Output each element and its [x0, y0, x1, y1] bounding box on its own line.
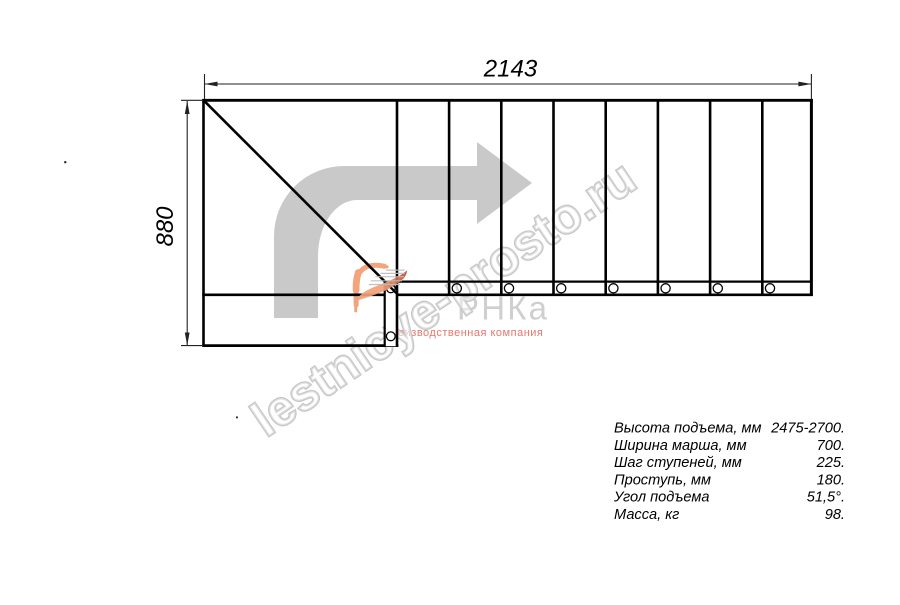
svg-text:225.: 225.	[816, 455, 845, 471]
svg-text:Проступь, мм: Проступь, мм	[614, 472, 711, 488]
svg-text:98.: 98.	[825, 507, 845, 523]
svg-text:700.: 700.	[817, 438, 845, 454]
svg-text:880: 880	[152, 206, 179, 247]
svg-text:Угол подъема: Угол подъема	[613, 490, 709, 506]
svg-text:2475-2700.: 2475-2700.	[770, 421, 845, 437]
svg-text:Высота подъема, мм: Высота подъема, мм	[614, 421, 762, 437]
svg-text:Ширина марша, мм: Ширина марша, мм	[614, 438, 747, 454]
svg-text:51,5°.: 51,5°.	[807, 490, 845, 506]
svg-text:Масса, кг: Масса, кг	[614, 507, 679, 523]
svg-text:Шаг ступеней, мм: Шаг ступеней, мм	[614, 455, 742, 471]
svg-text:180.: 180.	[817, 472, 845, 488]
svg-text:2143: 2143	[483, 56, 538, 83]
